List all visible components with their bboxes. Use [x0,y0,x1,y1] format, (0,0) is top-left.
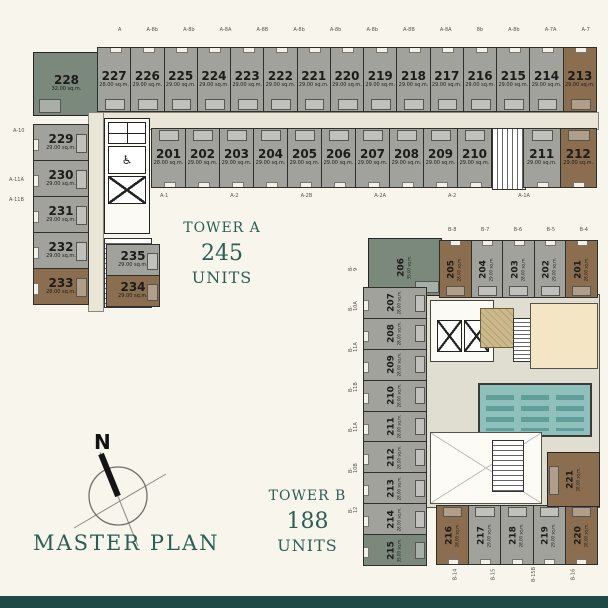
unit-number: 216 [445,526,454,545]
unit-number: 214 [534,70,559,82]
unit-area: 29.00 sq.m. [46,145,76,153]
unit-number: 234 [120,281,145,293]
bath-box [193,130,213,141]
bath-box [568,130,590,141]
unit-number: 213 [387,479,396,498]
bath-box [415,511,425,528]
grid-label: A-2B [301,194,313,199]
tower-a-title: TOWER A 245 UNITS [162,220,282,287]
unit-number: 208 [394,148,419,160]
balcony-mark [575,47,587,53]
unit-area: 28.00 sq.m. [396,507,402,531]
unit-area: 29.00 sq.m. [460,160,490,168]
unit-area: 29.00 sq.m. [488,257,494,281]
unit: 205 28.00 sq.m. [439,240,472,298]
grid-label: A-2A [374,194,386,199]
balcony-mark [276,47,288,53]
unit-number: 224 [201,70,226,82]
unit-area: 29.00 sq.m. [133,82,163,90]
tower-b-grid-labels-top: B-8B-7B-6B-5B-4 [448,228,588,233]
unit-area: 29.00 sq.m. [399,82,429,90]
grid-label: A-8b [183,28,194,33]
grid-label: 8b [477,28,483,33]
bath-box [415,356,425,373]
unit: 201 28.00 sq.m. [565,240,598,298]
bath-box [446,286,465,296]
unit-number: 229 [48,133,73,145]
lift-shaft-icon [108,176,146,204]
unit-area: 28.00 sq.m. [396,353,402,377]
bath-box [478,286,497,296]
sauna-room [480,308,514,348]
unit-number: 208 [387,324,396,343]
bath-box [261,130,281,141]
bath-box [305,99,325,110]
balcony-mark [176,47,188,53]
unit-number: 219 [542,526,551,545]
unit: 232 29.00 sq.m. [33,232,89,269]
balcony-mark [110,47,122,53]
balcony-mark [544,559,555,565]
elevator-icon [108,122,146,144]
bath-box [172,99,192,110]
unit-number: 211 [529,148,554,160]
grid-label: A-8A [440,28,452,33]
unit-area: 29.00 sq.m. [498,82,528,90]
unit-area: 28.00 sq.m. [457,257,463,281]
unit: 201 28.00 sq.m. [151,128,186,188]
unit: 205 29.00 sq.m. [287,128,322,188]
unit-number: 203 [224,148,249,160]
bath-box [415,387,425,404]
balcony-mark [448,559,459,565]
unit-area: 28.00 sq.m. [396,291,402,315]
unit: 215 35.00 sq.m. [363,534,427,566]
unit: 211 28.00 sq.m. [363,411,427,443]
grid-label: A-11B [9,197,24,203]
unit-number: 218 [510,526,519,545]
bath-box [415,449,425,466]
balcony-mark [363,362,369,373]
tower-b-grid-labels-left: B-9B-10AB-11AB-11BB-11AB-10BB-12 [350,262,358,514]
grid-label: A-10 [13,128,24,134]
unit-number: 225 [168,70,193,82]
tower-a-second-row-right: 211 29.00 sq.m. 212 29.00 sq.m. [524,128,597,188]
balcony-mark [542,47,554,53]
balcony-mark [243,47,255,53]
grid-label: B-15B [532,567,537,582]
unit-area: 35.00 sq.m. [406,255,412,279]
bath-box [415,295,425,312]
bath-box [549,466,559,495]
bath-box [371,99,391,110]
page-title: MASTER PLAN [33,531,233,555]
bath-box [415,480,425,497]
unit-number: 221 [566,470,575,489]
unit-number: 215 [501,70,526,82]
balcony-mark [573,182,585,188]
unit-area: 32.00 sq.m. [52,86,82,94]
unit: 203 28.00 sq.m. [502,240,535,298]
unit-area: 29.00 sq.m. [188,160,218,168]
unit-number: 223 [235,70,260,82]
balcony-mark [476,47,488,53]
balcony-mark [334,182,346,188]
unit-number: 215 [387,541,396,560]
unit: 225 29.00 sq.m. [164,47,198,112]
bath-box [415,325,425,342]
balcony-mark [442,47,454,53]
tower-a-grid-labels-top: AA-8bA-8bA-8AA-8BA-8bA-8bA-8bA-8BA-8A8bA… [118,28,590,33]
tower-a-corridor-vertical [88,112,104,312]
unit-area: 28.00 sq.m. [520,257,526,281]
balcony-mark [450,240,461,246]
balcony-mark [576,559,587,565]
grid-label: A-1A [518,194,530,199]
grid-label: B-4 [580,228,588,233]
bath-box [443,507,462,517]
grid-label: A-2 [230,194,238,199]
footer-bar [0,596,608,608]
tower-b-name: TOWER B [250,488,365,504]
balcony-mark [198,182,210,188]
unit-number: 204 [479,260,488,279]
bath-box [541,286,560,296]
unit-number: 228 [54,74,79,86]
balcony-mark [33,175,39,187]
grid-label: B-10B [349,465,359,473]
bath-box [271,99,291,110]
bath-box [431,130,451,141]
balcony-mark [368,182,380,188]
balcony-mark [470,182,482,188]
bath-box [147,253,158,270]
unit-area: 29.00 sq.m. [118,262,148,270]
bath-box [138,99,158,110]
grid-label: A-8b [366,28,377,33]
balcony-mark [509,47,521,53]
unit: 234 29.00 sq.m. [106,275,160,307]
bath-box [475,507,494,517]
tower-a-second-row: 201 28.00 sq.m. 202 29.00 sq.m. 203 29.0… [152,128,492,188]
bath-box [147,284,158,301]
unit: 204 29.00 sq.m. [253,128,288,188]
tower-b-grid-labels-bottom: B-14B-15B-15BB-16 [450,572,580,577]
tower-b-bottom-row: 216 28.00 sq.m. 217 29.00 sq.m. 218 28.0… [437,505,598,565]
unit-number: 206 [326,148,351,160]
balcony-mark [376,47,388,53]
unit-area: 29.00 sq.m. [232,82,262,90]
bath-box [508,507,527,517]
balcony-mark [143,47,155,53]
bath-box [571,99,591,110]
balcony-mark [363,393,369,404]
unit-area: 29.00 sq.m. [46,253,76,261]
unit-area: 28.00 sq.m. [154,160,184,168]
fitness-room [530,303,598,369]
bath-box [238,99,258,110]
unit-area: 29.00 sq.m. [465,82,495,90]
unit-area: 29.00 sq.m. [299,82,329,90]
unit-area: 28.00 sq.m. [396,445,402,469]
balcony-mark [33,247,39,259]
unit: 231 29.00 sq.m. [33,196,89,233]
unit-area: 29.00 sq.m. [551,523,557,547]
bath-box [227,130,247,141]
unit-area: 29.00 sq.m. [46,181,76,189]
unit-number: 214 [387,510,396,529]
bath-box [105,99,125,110]
pool-lane [486,389,515,431]
unit-number: 202 [190,148,215,160]
bath-box [504,99,524,110]
unit-number: 233 [48,277,73,289]
balcony-mark [402,182,414,188]
balcony-mark [537,182,549,188]
unit: 227 28.00 sq.m. [97,47,131,112]
unit: 204 29.00 sq.m. [471,240,504,298]
balcony-mark [363,300,369,311]
tower-a-left-column: 229 29.00 sq.m. 230 29.00 sq.m. 231 29.0… [33,125,89,305]
tower-a-stairs-2 [492,128,526,190]
unit-number: 235 [120,250,145,262]
unit-area: 29.00 sq.m. [266,82,296,90]
balcony-mark [363,331,369,342]
unit: 216 28.00 sq.m. [436,505,469,565]
bath-box [509,286,528,296]
bath-box [39,99,61,113]
balcony-mark [309,47,321,53]
unit-area: 29.00 sq.m. [527,160,557,168]
bath-box [572,507,591,517]
unit-area: 29.00 sq.m. [432,82,462,90]
bath-box [404,99,424,110]
unit-number: 212 [566,148,591,160]
balcony-mark [33,211,39,223]
unit-area: 28.00 sq.m. [396,476,402,500]
unit-area: 28.00 sq.m. [396,322,402,346]
unit: 212 29.00 sq.m. [560,128,598,188]
unit-number: 217 [477,526,486,545]
tower-b-left-column: 207 28.00 sq.m. 208 28.00 sq.m. 209 28.0… [363,288,427,566]
tower-a-name: TOWER A [162,220,282,236]
unit: 223 29.00 sq.m. [230,47,264,112]
unit-area: 28.00 sq.m. [575,468,581,492]
bath-box [76,134,87,154]
unit-number: 203 [511,260,520,279]
bath-box [465,130,485,141]
unit-area: 29.00 sq.m. [532,82,562,90]
grid-label: A-8B [403,28,415,33]
unit: 226 29.00 sq.m. [130,47,164,112]
unit: 222 29.00 sq.m. [263,47,297,112]
unit: 230 29.00 sq.m. [33,160,89,197]
unit: 203 29.00 sq.m. [219,128,254,188]
grid-label: A-8B [256,28,268,33]
unit: 219 29.00 sq.m. [533,505,566,565]
bath-box [76,278,87,298]
unit-area: 29.00 sq.m. [199,82,229,90]
unit-number: 232 [48,241,73,253]
unit-area: 29.00 sq.m. [563,160,593,168]
unit: 218 28.00 sq.m. [500,505,533,565]
grid-label: A-7 [582,28,590,33]
unit-area: 29.00 sq.m. [118,293,148,301]
unit: 213 29.00 sq.m. [563,47,597,112]
unit-number: 220 [574,526,583,545]
unit: 208 28.00 sq.m. [363,318,427,350]
unit-area: 28.00 sq.m. [454,523,460,547]
unit-area: 28.00 sq.m. [46,289,76,297]
unit: 220 29.00 sq.m. [330,47,364,112]
unit-number: 201 [156,148,181,160]
balcony-mark [514,240,525,246]
tower-a-grid-labels-bottom: A-1A-2A-2BA-2AA-2A-1A [160,194,530,199]
tower-a-lift-core: ♿ [104,118,150,234]
unit-number: 202 [543,260,552,279]
grid-label: A-8b [293,28,304,33]
unit-number: 211 [387,417,396,436]
grid-label: B-5 [547,228,555,233]
unit-number: 206 [397,258,406,277]
unit: 209 28.00 sq.m. [363,349,427,381]
unit-number: 201 [574,260,583,279]
bath-box [205,99,225,110]
grid-label: A-7A [545,28,557,33]
unit-area: 28.00 sq.m. [583,257,589,281]
unit-area: 28.00 sq.m. [396,384,402,408]
unit-b221: 221 28.00 sq.m. [547,452,600,507]
grid-label: B-14 [453,569,458,581]
unit: 224 29.00 sq.m. [197,47,231,112]
tower-a-unit-count: 245 [162,241,282,266]
unit-number: 209 [428,148,453,160]
balcony-mark [209,47,221,53]
tower-b-unit-count: 188 [250,509,365,534]
grid-label: B-11A [349,424,359,432]
unit: 221 29.00 sq.m. [297,47,331,112]
balcony-mark [300,182,312,188]
grid-label: B-15 [492,569,497,581]
unit-number: 213 [567,70,592,82]
grid-label: B-10A [349,303,359,311]
unit-number: 220 [334,70,359,82]
unit-area: 29.00 sq.m. [332,82,362,90]
grid-label: B-11B [349,384,359,392]
unit: 219 29.00 sq.m. [363,47,397,112]
unit: 209 29.00 sq.m. [423,128,458,188]
unit: 207 29.00 sq.m. [355,128,390,188]
tower-b-units-word: UNITS [250,536,365,555]
bath-box [538,99,558,110]
unit-number: 221 [301,70,326,82]
unit: 217 29.00 sq.m. [468,505,501,565]
unit-number: 212 [387,448,396,467]
unit-area: 29.00 sq.m. [365,82,395,90]
balcony-mark [545,240,556,246]
unit-area: 29.00 sq.m. [392,160,422,168]
grid-label: B-8 [448,228,456,233]
pool-lane [556,389,585,431]
unit-area: 29.00 sq.m. [324,160,354,168]
unit: 210 29.00 sq.m. [457,128,492,188]
balcony-mark [33,283,39,295]
unit: 206 29.00 sq.m. [321,128,356,188]
unit: 229 29.00 sq.m. [33,124,89,161]
unit-area: 28.00 sq.m. [583,523,589,547]
balcony-mark [33,139,39,151]
bath-box [295,130,315,141]
grid-label: B-6 [514,228,522,233]
unit-area: 28.00 sq.m. [396,415,402,439]
unit-area: 35.00 sq.m. [396,538,402,562]
unit-area: 29.00 sq.m. [565,82,595,90]
unit: 202 29.00 sq.m. [185,128,220,188]
grid-label: B-7 [481,228,489,233]
unit-number: 216 [468,70,493,82]
unit: 214 29.00 sq.m. [529,47,563,112]
tower-a-units-word: UNITS [162,268,282,287]
unit: 210 28.00 sq.m. [363,380,427,412]
balcony-mark [363,424,369,435]
grid-label: A-8b [330,28,341,33]
unit-number: 210 [387,386,396,405]
unit: 220 28.00 sq.m. [565,505,598,565]
unit: 208 29.00 sq.m. [389,128,424,188]
unit: 213 28.00 sq.m. [363,472,427,504]
balcony-mark [480,559,491,565]
unit-area: 29.00 sq.m. [256,160,286,168]
bath-box [363,130,383,141]
unit-number: 205 [292,148,317,160]
unit-number: 222 [268,70,293,82]
bath-box [415,542,425,559]
bath-box [338,99,358,110]
bath-box [438,99,458,110]
unit-area: 28.00 sq.m. [99,82,129,90]
unit-area: 29.00 sq.m. [166,82,196,90]
bath-box [76,242,87,262]
tower-b-top-row: 205 28.00 sq.m. 204 29.00 sq.m. 203 28.0… [440,240,598,298]
tower-a-inner-column: 235 29.00 sq.m. 234 29.00 sq.m. [106,245,160,307]
bath-box [532,130,554,141]
grid-label: B-16 [572,569,577,581]
bath-box [540,507,559,517]
unit-number: 204 [258,148,283,160]
grid-label: A-8A [220,28,232,33]
unit-area: 29.00 sq.m. [358,160,388,168]
bath-box [415,418,425,435]
balcony-mark [482,240,493,246]
unit-area: 29.00 sq.m. [290,160,320,168]
grid-label: B-9 [349,263,359,271]
balcony-mark [436,182,448,188]
unit-number: 217 [434,70,459,82]
unit: 218 29.00 sq.m. [396,47,430,112]
unit-area: 28.00 sq.m. [519,523,525,547]
bath-box [471,99,491,110]
unit: 202 29.00 sq.m. [534,240,567,298]
unit-number: 226 [135,70,160,82]
unit-area: 29.00 sq.m. [222,160,252,168]
grid-label: A [118,28,121,33]
grid-label: A-11A [9,177,24,183]
unit-number: 210 [462,148,487,160]
balcony-mark [363,454,369,465]
grid-label: A-8b [508,28,519,33]
swimming-pool [478,383,592,437]
unit-area: 29.00 sq.m. [46,217,76,225]
